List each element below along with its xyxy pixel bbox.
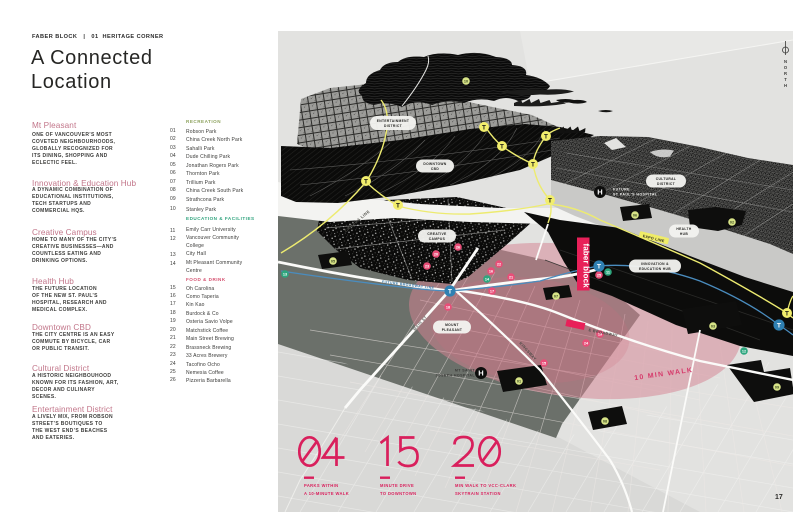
svg-text:21: 21 <box>509 276 513 280</box>
svg-text:T: T <box>396 203 400 210</box>
svg-text:SKYTRAIN STATION: SKYTRAIN STATION <box>455 491 501 496</box>
svg-text:T: T <box>544 134 548 141</box>
svg-text:22: 22 <box>497 263 501 267</box>
svg-text:17: 17 <box>775 494 783 501</box>
svg-text:03: 03 <box>711 325 715 329</box>
svg-text:11: 11 <box>606 271 610 275</box>
svg-text:PARKS WITHIN: PARKS WITHIN <box>304 483 339 488</box>
svg-text:CAMPUS: CAMPUS <box>429 237 446 241</box>
svg-text:23: 23 <box>425 265 429 269</box>
svg-text:T: T <box>784 77 787 82</box>
svg-text:CBD: CBD <box>431 167 439 171</box>
svg-text:FUTURE: FUTURE <box>613 188 630 192</box>
svg-text:HUB: HUB <box>680 232 688 236</box>
svg-text:06: 06 <box>633 214 637 218</box>
svg-text:T: T <box>531 162 535 169</box>
svg-text:H: H <box>784 83 787 88</box>
svg-text:ENTERTAINMENT: ENTERTAINMENT <box>377 119 410 123</box>
svg-text:25: 25 <box>597 274 601 278</box>
svg-text:PLEASANT: PLEASANT <box>442 328 463 332</box>
svg-text:08: 08 <box>603 420 607 424</box>
svg-text:01: 01 <box>517 380 521 384</box>
svg-text:12: 12 <box>742 350 746 354</box>
svg-text:02: 02 <box>730 221 734 225</box>
svg-text:05: 05 <box>331 260 335 264</box>
svg-text:faber block: faber block <box>582 244 591 289</box>
svg-text:16: 16 <box>489 270 493 274</box>
svg-text:MIN WALK TO VCC-CLARK: MIN WALK TO VCC-CLARK <box>455 483 516 488</box>
svg-text:A 10-MINUTE WALK: A 10-MINUTE WALK <box>304 491 349 496</box>
svg-text:DOWNTOWN: DOWNTOWN <box>423 162 447 166</box>
svg-text:EDUCATION HUB: EDUCATION HUB <box>639 267 671 271</box>
svg-text:R: R <box>784 71 787 76</box>
svg-text:17: 17 <box>490 290 494 294</box>
svg-text:CULTURAL: CULTURAL <box>656 177 677 181</box>
svg-text:H: H <box>478 368 483 377</box>
svg-text:T: T <box>500 144 504 151</box>
svg-text:09: 09 <box>775 386 779 390</box>
svg-text:T: T <box>785 311 789 318</box>
svg-text:26: 26 <box>456 246 460 250</box>
svg-text:MOUNT: MOUNT <box>445 323 459 327</box>
svg-text:07: 07 <box>554 295 558 299</box>
svg-text:HEALTH: HEALTH <box>676 227 691 231</box>
svg-text:CREATIVE: CREATIVE <box>427 232 447 236</box>
svg-text:13: 13 <box>283 273 287 277</box>
svg-text:JOSEPH HOSPITAL: JOSEPH HOSPITAL <box>436 374 476 378</box>
svg-text:H: H <box>597 187 602 196</box>
svg-text:MINUTE DRIVE: MINUTE DRIVE <box>380 483 414 488</box>
svg-text:N: N <box>784 59 787 64</box>
svg-text:ST PAUL'S HOSPITAL: ST PAUL'S HOSPITAL <box>613 193 658 197</box>
svg-text:TO DOWNTOWN: TO DOWNTOWN <box>380 491 417 496</box>
svg-text:T: T <box>482 125 486 132</box>
svg-text:10: 10 <box>464 80 468 84</box>
svg-text:18: 18 <box>446 306 450 310</box>
svg-text:20: 20 <box>434 253 438 257</box>
svg-text:DISTRICT: DISTRICT <box>384 124 402 128</box>
svg-text:15: 15 <box>542 362 546 366</box>
svg-text:INNOVATION &: INNOVATION & <box>641 262 669 266</box>
svg-text:T: T <box>548 198 552 205</box>
svg-text:DISTRICT: DISTRICT <box>657 182 675 186</box>
svg-text:T: T <box>364 179 368 186</box>
svg-text:MT SAINT: MT SAINT <box>455 369 476 373</box>
